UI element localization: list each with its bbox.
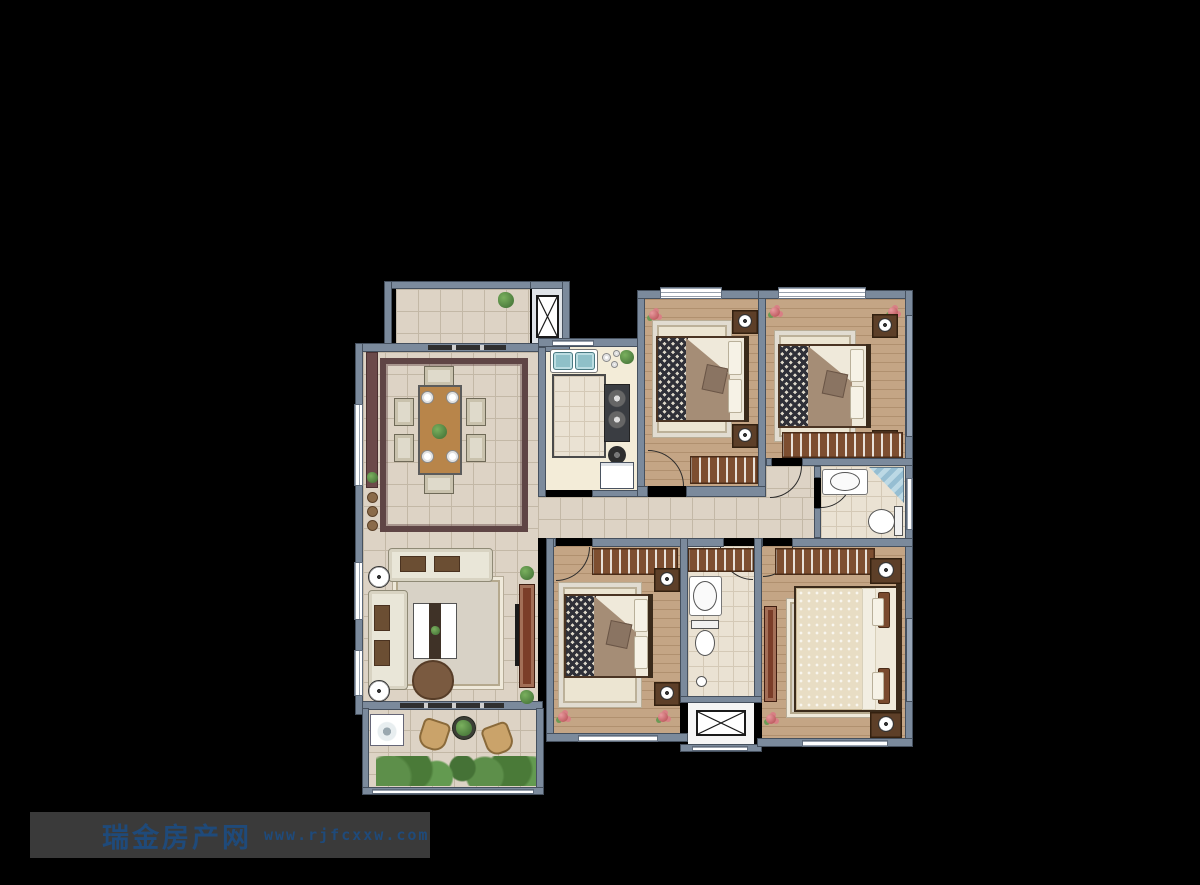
pillow <box>872 598 884 626</box>
flower-icon <box>558 712 568 722</box>
wall <box>637 290 645 497</box>
flower-icon <box>766 714 776 724</box>
wall <box>546 538 554 740</box>
wall <box>384 281 534 289</box>
wall <box>814 508 821 538</box>
wall <box>536 708 544 792</box>
window <box>778 287 866 299</box>
lamp-icon <box>738 428 752 442</box>
wall <box>758 290 766 497</box>
plant-pot <box>367 492 378 503</box>
wall <box>384 281 392 345</box>
window <box>354 650 363 696</box>
flower-icon <box>658 712 668 722</box>
duct-shaft-icon <box>696 710 746 736</box>
sofa-cushion <box>400 556 426 572</box>
wall <box>754 538 762 703</box>
wall <box>766 458 772 466</box>
wall <box>814 466 821 478</box>
window <box>578 735 658 742</box>
plant-icon <box>431 626 440 635</box>
watermark: 瑞金房产网 www.rjfcxxw.com <box>30 812 430 858</box>
lamp-icon <box>878 562 894 578</box>
dish <box>611 361 618 368</box>
floor-lamp-icon <box>368 680 390 702</box>
window <box>692 746 748 751</box>
plate <box>421 450 434 463</box>
window <box>660 287 722 299</box>
tv-cabinet <box>764 606 777 702</box>
wall <box>538 347 546 497</box>
headboard <box>744 336 749 422</box>
plate <box>446 450 459 463</box>
window <box>906 478 913 530</box>
plant-icon <box>498 292 514 308</box>
flower-icon <box>770 307 780 317</box>
dining-chair <box>424 474 454 494</box>
toilet-icon <box>691 620 719 629</box>
bay-window <box>906 315 913 437</box>
gas-stove-icon <box>604 384 630 442</box>
pillow <box>728 341 742 375</box>
toilet-icon <box>695 630 715 656</box>
wall <box>562 281 570 345</box>
double-sink-icon <box>575 352 595 370</box>
fridge-icon <box>600 462 634 489</box>
bed-duvet-checkered <box>658 338 688 420</box>
double-sink-icon <box>553 352 573 370</box>
plant-icon <box>456 720 472 736</box>
bed-duvet-checkered <box>780 346 810 426</box>
balcony-sliding-door <box>400 703 504 708</box>
plate <box>421 391 434 404</box>
hallway <box>538 497 814 538</box>
plant-icon <box>432 424 447 439</box>
dining-chair <box>424 366 454 386</box>
wardrobe-icon <box>688 548 754 572</box>
wall <box>637 486 648 497</box>
shower-icon <box>696 676 707 687</box>
bed-duvet-checkered <box>566 596 596 676</box>
plant-icon <box>520 690 534 704</box>
sofa-cushion <box>374 605 390 631</box>
wardrobe-icon <box>775 548 875 575</box>
plant-icon <box>620 350 634 364</box>
dish <box>613 350 620 357</box>
washbasin-icon <box>693 581 717 611</box>
wall <box>792 538 913 547</box>
entry-sliding-door <box>428 345 506 350</box>
toilet-icon <box>868 509 895 534</box>
lamp-icon <box>878 716 894 732</box>
flower-icon <box>649 310 659 320</box>
plate <box>446 391 459 404</box>
sofa-cushion <box>434 556 460 572</box>
toilet-icon <box>894 506 903 536</box>
balcony-railing-window <box>372 789 534 794</box>
sofa-cushion <box>374 640 390 666</box>
pillow <box>634 599 648 632</box>
bay-window <box>906 618 913 702</box>
headboard <box>648 594 653 678</box>
lamp-icon <box>660 572 674 586</box>
window <box>354 404 363 486</box>
wall <box>680 538 688 703</box>
washbasin-icon <box>830 472 860 491</box>
pillow <box>728 379 742 413</box>
headboard <box>896 584 902 714</box>
plant-icon <box>367 472 378 483</box>
pillow <box>850 386 864 419</box>
pillow <box>850 349 864 382</box>
wall <box>802 458 913 466</box>
kitchen-counter-block <box>552 374 606 458</box>
balcony-greenery <box>376 756 536 786</box>
wardrobe-icon <box>782 432 903 458</box>
wardrobe-icon <box>690 456 758 484</box>
dining-chair <box>466 398 486 426</box>
window <box>354 562 363 620</box>
wall <box>680 696 762 703</box>
floor-lamp-icon <box>368 566 390 588</box>
dining-chair <box>394 398 414 426</box>
wall <box>592 538 724 547</box>
headboard <box>866 344 871 428</box>
dining-window-sill <box>366 352 378 488</box>
watermark-site-name: 瑞金房产网 <box>102 816 252 855</box>
plant-pot <box>367 506 378 517</box>
lamp-icon <box>738 314 752 328</box>
watermark-url: www.rjfcxxw.com <box>264 826 429 844</box>
lamp-icon <box>660 686 674 700</box>
washing-machine-icon <box>370 714 404 746</box>
master-duvet <box>796 588 866 710</box>
pillow <box>872 672 884 700</box>
window <box>802 740 888 747</box>
dining-chair <box>394 434 414 462</box>
floorplan-image: 瑞金房产网 www.rjfcxxw.com <box>0 0 1200 885</box>
plant-pot <box>367 520 378 531</box>
wall <box>362 708 369 792</box>
window <box>552 340 594 346</box>
armchair-icon <box>412 660 454 700</box>
dining-chair <box>466 434 486 462</box>
pillow <box>634 636 648 669</box>
dish <box>602 353 611 362</box>
tv-console-icon <box>519 584 535 688</box>
plant-icon <box>520 566 534 580</box>
lamp-icon <box>878 318 892 332</box>
wall <box>686 486 766 497</box>
elevator-icon <box>536 295 559 338</box>
